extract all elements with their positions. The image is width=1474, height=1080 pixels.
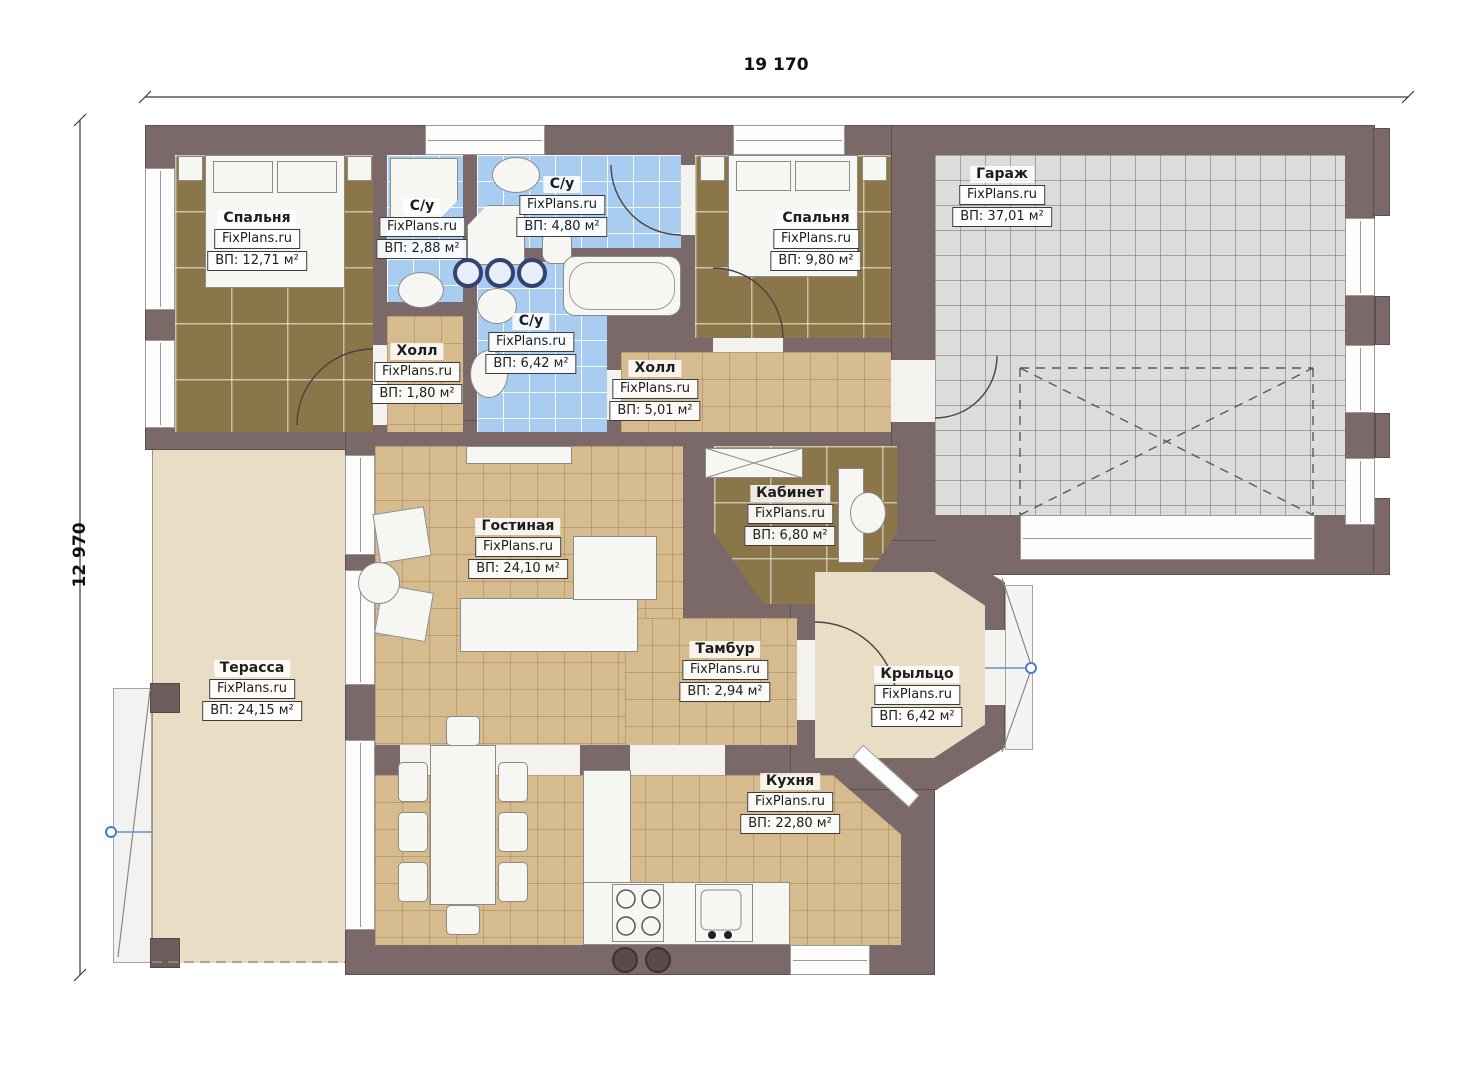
room-area: ВП: 24,10 м² [468, 559, 568, 579]
watermark: FixPlans.ru [959, 185, 1045, 205]
room-area: ВП: 22,80 м² [740, 814, 840, 834]
room-name: Холл [629, 360, 682, 377]
kitchen-window [790, 945, 870, 975]
room-name: Терасса [214, 660, 291, 677]
room-name: Кабинет [750, 485, 830, 502]
room-name: Холл [391, 343, 444, 360]
washing-machine [517, 258, 547, 288]
watermark: FixPlans.ru [374, 362, 460, 382]
watermark: FixPlans.ru [214, 229, 300, 249]
room-label-porch: Крыльцо FixPlans.ru ВП: 6,42 м² [871, 666, 962, 727]
sink [398, 272, 444, 308]
room-area: ВП: 9,80 м² [770, 251, 861, 271]
room-label-kitchen: Кухня FixPlans.ru ВП: 22,80 м² [740, 773, 840, 834]
room-name: Гостиная [476, 518, 561, 535]
room-area: ВП: 2,88 м² [376, 239, 467, 259]
chair [498, 762, 528, 802]
pillow [736, 161, 791, 191]
chair [498, 812, 528, 852]
room-name: Спальня [217, 210, 296, 227]
watermark: FixPlans.ru [612, 379, 698, 399]
pilaster [1375, 296, 1390, 345]
room-label-bathroom-1: С/у FixPlans.ru ВП: 2,88 м² [376, 198, 467, 259]
nightstand [862, 156, 887, 181]
room-area: ВП: 6,42 м² [871, 707, 962, 727]
pillow [213, 161, 273, 193]
room-name: С/у [404, 198, 441, 215]
room-area: ВП: 2,94 м² [679, 682, 770, 702]
room-label-bedroom-1: Спальня FixPlans.ru ВП: 12,71 м² [207, 210, 307, 271]
chair [446, 716, 480, 746]
floor-plan: 19 170 12 970 Спальня FixPlans.ru ВП: 12… [0, 0, 1474, 1080]
room-name: Тамбур [689, 641, 760, 658]
porch-floor [815, 572, 985, 758]
room-area: ВП: 24,15 м² [202, 701, 302, 721]
room-label-office: Кабинет FixPlans.ru ВП: 6,80 м² [744, 485, 835, 546]
chair [398, 762, 428, 802]
chair [398, 862, 428, 902]
door-opening [797, 640, 815, 720]
room-label-bathroom-2: С/у FixPlans.ru ВП: 4,80 м² [516, 176, 607, 237]
watermark: FixPlans.ru [379, 217, 465, 237]
room-name: Гараж [970, 166, 1034, 183]
watermark: FixPlans.ru [874, 685, 960, 705]
room-area: ВП: 37,01 м² [952, 207, 1052, 227]
watermark: FixPlans.ru [209, 679, 295, 699]
terrace-ramp [113, 688, 152, 963]
watermark: FixPlans.ru [747, 504, 833, 524]
garage-window [1345, 458, 1375, 525]
wall-column [645, 947, 671, 973]
room-label-hall-2: Холл FixPlans.ru ВП: 5,01 м² [609, 360, 700, 421]
chair [498, 862, 528, 902]
kitchen-sink [695, 884, 753, 942]
pilaster [1375, 413, 1390, 458]
room-label-vestibule: Тамбур FixPlans.ru ВП: 2,94 м² [679, 641, 770, 702]
washing-machine [453, 258, 483, 288]
passage-opening [630, 745, 725, 775]
window [145, 340, 175, 428]
bathtub [563, 256, 681, 316]
stove [612, 884, 664, 942]
nightstand [700, 156, 725, 181]
shelf-unit [705, 448, 803, 478]
room-label-bedroom-2: Спальня FixPlans.ru ВП: 9,80 м² [770, 210, 861, 271]
watermark: FixPlans.ru [747, 792, 833, 812]
armchair [372, 506, 431, 564]
nightstand [347, 156, 372, 181]
room-area: ВП: 4,80 м² [516, 217, 607, 237]
room-area: ВП: 5,01 м² [609, 401, 700, 421]
door-opening [713, 338, 783, 352]
window [145, 168, 175, 310]
watermark: FixPlans.ru [773, 229, 859, 249]
pilaster [1373, 128, 1390, 216]
sofa [460, 598, 638, 652]
sofa-chaise [573, 536, 657, 600]
door-opening [891, 360, 935, 422]
garage-window [1345, 345, 1375, 413]
room-label-garage: Гараж FixPlans.ru ВП: 37,01 м² [952, 166, 1052, 227]
room-area: ВП: 1,80 м² [371, 384, 462, 404]
washing-machine [485, 258, 515, 288]
room-label-living-room: Гостиная FixPlans.ru ВП: 24,10 м² [468, 518, 568, 579]
window [425, 125, 545, 155]
pillow [277, 161, 337, 193]
garage-window [1345, 218, 1375, 296]
room-name: Кухня [760, 773, 820, 790]
chair [398, 812, 428, 852]
room-name: Спальня [776, 210, 855, 227]
nightstand [178, 156, 203, 181]
room-area: ВП: 6,80 м² [744, 526, 835, 546]
watermark: FixPlans.ru [475, 537, 561, 557]
wall-column [612, 947, 638, 973]
room-name: С/у [544, 176, 581, 193]
office-chair [850, 492, 886, 534]
pilaster [1373, 498, 1390, 575]
watermark: FixPlans.ru [488, 332, 574, 352]
window [733, 125, 845, 155]
dining-table [430, 745, 496, 905]
watermark: FixPlans.ru [682, 660, 768, 680]
pillow [795, 161, 850, 191]
porch-steps [1005, 585, 1033, 750]
dimension-height: 12 970 [70, 505, 90, 605]
terrace-column [150, 683, 180, 713]
room-label-terrace: Терасса FixPlans.ru ВП: 24,15 м² [202, 660, 302, 721]
room-area: ВП: 6,42 м² [485, 354, 576, 374]
dimension-width: 19 170 [743, 55, 808, 75]
room-label-bathroom-3: С/у FixPlans.ru ВП: 6,42 м² [485, 313, 576, 374]
room-name: Крыльцо [874, 666, 959, 683]
terrace-door [345, 740, 375, 930]
terrace-column [150, 938, 180, 968]
room-area: ВП: 12,71 м² [207, 251, 307, 271]
tv-stand [466, 446, 572, 464]
coffee-table [358, 562, 400, 604]
terrace-window [345, 455, 375, 555]
watermark: FixPlans.ru [519, 195, 605, 215]
bathtub-basin [569, 262, 675, 310]
door-opening [681, 165, 695, 235]
room-label-hall-1: Холл FixPlans.ru ВП: 1,80 м² [371, 343, 462, 404]
garage-gate [1020, 515, 1315, 560]
room-name: С/у [513, 313, 550, 330]
chair [446, 905, 480, 935]
porch-entry [985, 630, 1005, 705]
